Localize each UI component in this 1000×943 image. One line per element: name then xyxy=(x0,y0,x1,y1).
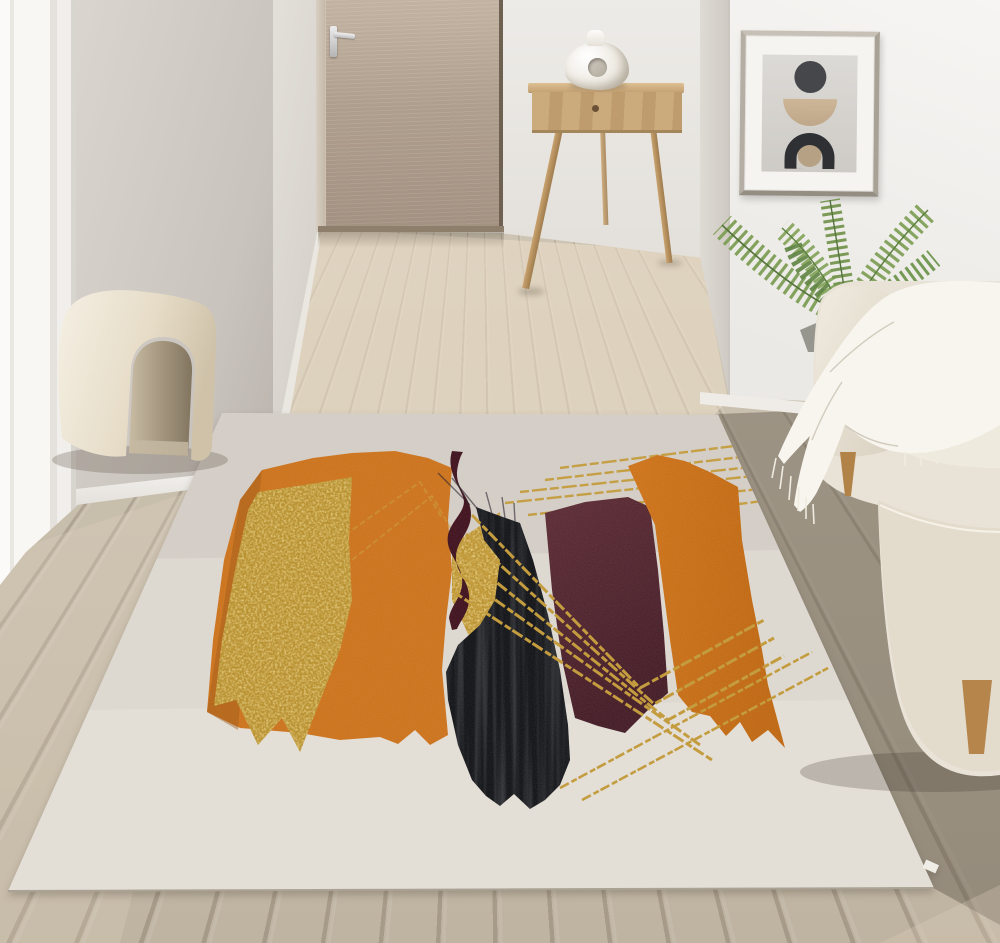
living-room-photo xyxy=(0,0,1000,943)
art-semicircle-motif xyxy=(783,99,837,127)
table-leg-shadow xyxy=(518,288,544,295)
drawer-knob xyxy=(592,105,599,112)
ceramic-vase xyxy=(563,30,633,92)
left-door-frame xyxy=(0,0,78,585)
console-table-drawer xyxy=(532,92,682,133)
art-print xyxy=(761,55,857,173)
door-gap-shadow xyxy=(499,0,503,230)
door-jamb xyxy=(316,0,325,232)
vase-hole xyxy=(588,58,607,77)
art-arch-motif xyxy=(784,133,834,170)
vase-neck xyxy=(587,30,604,46)
art-circle-motif xyxy=(794,61,826,93)
left-wall xyxy=(76,0,275,505)
door-handle-plate xyxy=(330,26,337,57)
door-floor-shadow xyxy=(318,232,504,248)
framed-abstract-art xyxy=(739,30,880,196)
wooden-door xyxy=(316,0,510,250)
